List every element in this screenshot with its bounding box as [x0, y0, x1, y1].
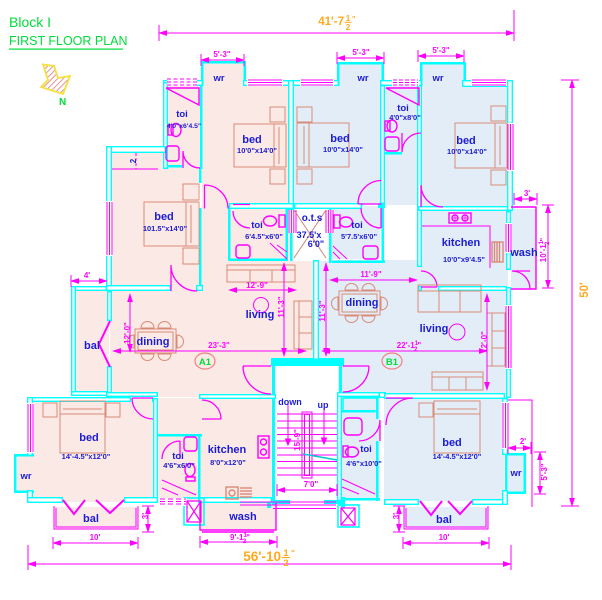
- svg-text:5'-3": 5'-3": [352, 48, 369, 57]
- svg-text:12'-0": 12'-0": [123, 322, 132, 344]
- svg-text:dining: dining: [346, 297, 379, 309]
- svg-text:56'-10: 56'-10: [243, 549, 281, 564]
- svg-text:bal: bal: [436, 514, 452, 526]
- svg-text:wr: wr: [356, 73, 368, 84]
- svg-text:14'-4.5"x12'0": 14'-4.5"x12'0": [62, 452, 111, 461]
- svg-text:5'-3": 5'-3": [432, 46, 449, 55]
- svg-text:Block I: Block I: [9, 14, 51, 30]
- svg-text:10': 10': [439, 533, 450, 542]
- svg-text:11'-9": 11'-9": [360, 270, 381, 279]
- svg-text:A1: A1: [199, 357, 212, 368]
- svg-text:14'-4.5"x12'0": 14'-4.5"x12'0": [433, 452, 482, 461]
- svg-text:4'6"x10'0": 4'6"x10'0": [346, 459, 382, 468]
- svg-text:12'-9": 12'-9": [246, 281, 268, 290]
- svg-text:up: up: [318, 400, 329, 410]
- svg-text:10'0"x14'0": 10'0"x14'0": [447, 147, 487, 156]
- svg-text:4'0"x8'0": 4'0"x8'0": [389, 113, 421, 122]
- svg-text:living: living: [420, 323, 449, 335]
- svg-text:10'0"x9'4.5": 10'0"x9'4.5": [443, 255, 485, 264]
- svg-text:wr: wr: [212, 73, 224, 84]
- svg-text:bed: bed: [330, 133, 350, 145]
- svg-text:bed: bed: [442, 437, 462, 449]
- svg-text:6'4.5"x6'0": 6'4.5"x6'0": [245, 232, 283, 241]
- svg-text:6'0": 6'0": [308, 239, 324, 249]
- svg-text:wash: wash: [509, 247, 538, 259]
- svg-text:1: 1: [346, 14, 351, 23]
- svg-text:o.t.s: o.t.s: [302, 213, 323, 224]
- svg-text:23'-3": 23'-3": [208, 341, 230, 350]
- svg-text:bed: bed: [79, 432, 99, 444]
- svg-text:toi: toi: [351, 220, 363, 231]
- svg-text:": ": [352, 16, 355, 23]
- svg-text:10'0"x14'0": 10'0"x14'0": [237, 146, 277, 155]
- svg-text:5'-3": 5'-3": [540, 463, 549, 480]
- svg-text:toi: toi: [176, 109, 188, 120]
- svg-text:down: down: [278, 397, 302, 407]
- svg-text:11'-3": 11'-3": [318, 300, 327, 321]
- svg-text:4'0"x6'4.5": 4'0"x6'4.5": [167, 123, 201, 130]
- svg-text:FIRST FLOOR PLAN: FIRST FLOOR PLAN: [9, 34, 128, 48]
- svg-text:bal: bal: [83, 513, 99, 525]
- svg-text:4'6"x6'0": 4'6"x6'0": [163, 461, 195, 470]
- svg-text:wash: wash: [228, 511, 257, 523]
- svg-text:3': 3': [141, 513, 150, 519]
- svg-text:3': 3': [524, 189, 530, 198]
- svg-text:wr: wr: [431, 73, 443, 84]
- svg-text:3': 3': [392, 513, 401, 519]
- svg-text:10': 10': [90, 533, 101, 542]
- svg-text:toi: toi: [360, 444, 372, 455]
- svg-text:101.5"x14'0": 101.5"x14'0": [143, 224, 188, 233]
- svg-text:41'-7: 41'-7: [318, 16, 344, 28]
- svg-text:2: 2: [283, 558, 288, 569]
- svg-text:10'0"x14'0": 10'0"x14'0": [323, 145, 363, 154]
- svg-text:11'-3": 11'-3": [277, 296, 286, 317]
- svg-text:bed: bed: [456, 135, 476, 147]
- svg-text:50': 50': [579, 282, 591, 298]
- svg-text:8'0"x12'0": 8'0"x12'0": [210, 458, 246, 467]
- svg-text:B1: B1: [386, 357, 399, 368]
- svg-text:7'0": 7'0": [304, 480, 319, 489]
- svg-text:12'-0": 12'-0": [480, 331, 489, 353]
- svg-text:wr: wr: [509, 468, 521, 479]
- svg-text:dining: dining: [137, 336, 170, 348]
- svg-text:wr: wr: [19, 471, 31, 482]
- svg-text:N: N: [59, 97, 66, 108]
- svg-text:bed: bed: [154, 211, 174, 223]
- svg-text:kitchen: kitchen: [208, 444, 247, 456]
- svg-text:": ": [291, 549, 295, 558]
- svg-text:living: living: [246, 309, 275, 321]
- svg-text:bal: bal: [84, 340, 100, 352]
- svg-text:kitchen: kitchen: [442, 237, 481, 249]
- svg-text:2: 2: [346, 23, 351, 32]
- svg-text:4': 4': [84, 271, 90, 280]
- svg-text:bed: bed: [242, 134, 262, 146]
- svg-text:2': 2': [520, 437, 526, 446]
- svg-text:5'-3": 5'-3": [213, 50, 230, 59]
- svg-text:2: 2: [129, 158, 138, 163]
- svg-text:toi: toi: [251, 220, 263, 231]
- svg-text:5'7.5'x6'0": 5'7.5'x6'0": [341, 232, 377, 241]
- svg-text:15'-9": 15'-9": [293, 429, 302, 451]
